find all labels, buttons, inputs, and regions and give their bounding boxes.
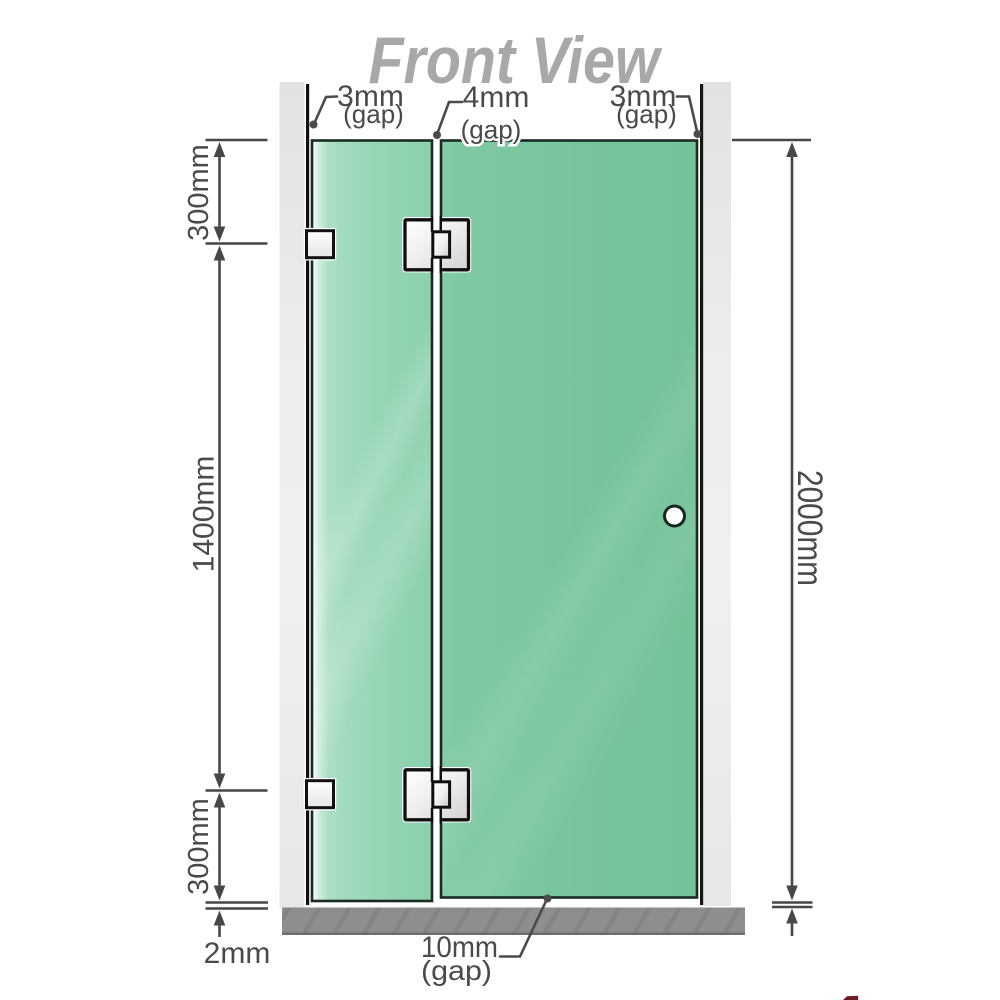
svg-text:1400mm: 1400mm [188, 456, 221, 573]
svg-text:2mm: 2mm [204, 937, 271, 970]
svg-text:300mm: 300mm [183, 144, 215, 241]
svg-text:300mm: 300mm [183, 798, 215, 895]
svg-text:4mm: 4mm [463, 81, 530, 114]
svg-text:(gap): (gap) [343, 99, 404, 129]
svg-text:(gap): (gap) [421, 955, 492, 986]
svg-text:(gap): (gap) [461, 115, 522, 145]
svg-text:(gap): (gap) [616, 99, 677, 129]
svg-text:2000mm: 2000mm [790, 470, 829, 586]
